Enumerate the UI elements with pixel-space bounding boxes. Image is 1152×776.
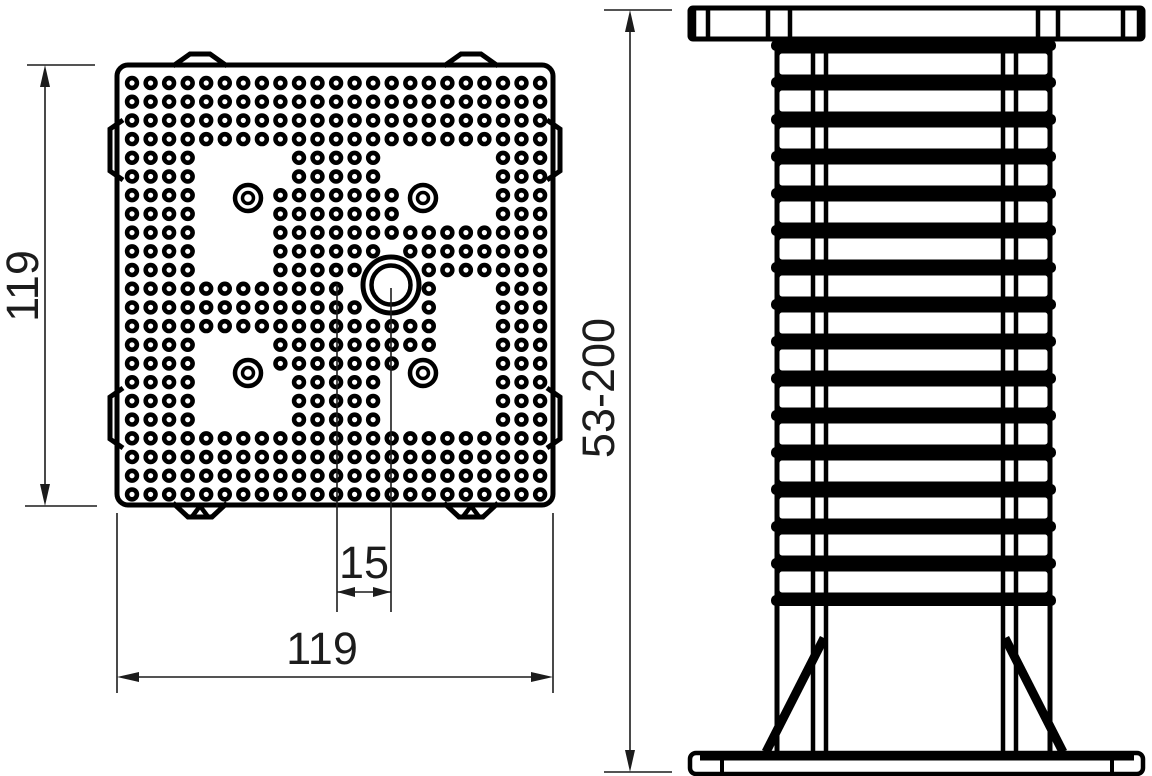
perforation-dot [368,209,378,219]
perforation-dot [183,415,193,425]
perforation-dot [424,78,434,88]
perforation-dot [535,433,545,443]
perforation-dot [164,433,174,443]
perforation-dot [276,134,286,144]
thread-groove [771,299,1056,310]
thread-band [777,273,1050,299]
perforation-dot [350,340,360,350]
perforation-dot [387,134,397,144]
perforation-dot [480,134,490,144]
perforation-dot [201,303,211,313]
perforation-dot [183,78,193,88]
perforation-dot [276,190,286,200]
perforation-dot [480,97,490,107]
dim-hole-offset: 15 [337,284,391,612]
perforation-dot [405,490,415,500]
perforation-dot [238,433,248,443]
perforation-dot [127,359,137,369]
perforation-dot [443,134,453,144]
perforation-dot [276,116,286,126]
perforation-dot [331,265,341,275]
perforation-dot [350,246,360,256]
perforation-dot [276,228,286,238]
perforation-dot [517,134,527,144]
perforation-dot [461,228,471,238]
perforation-dot [350,433,360,443]
perforation-dot [443,97,453,107]
perforation-dot [517,377,527,387]
perforation-dot [443,265,453,275]
perforation-dot [498,452,508,462]
perforation-dot [331,78,341,88]
perforation-dot [238,116,248,126]
dim-plate-width: 119 [117,513,553,693]
perforation-dot [498,134,508,144]
perforation-dot [276,433,286,443]
perforation-dot [331,172,341,182]
perforation-dot [257,97,267,107]
perforation-dot [276,265,286,275]
perforation-dot [183,471,193,481]
perforation-dot [535,396,545,406]
perforation-dot [498,228,508,238]
perforation-dot [535,452,545,462]
perforation-dot [164,490,174,500]
perforation-dot [424,321,434,331]
perforation-dot [498,190,508,200]
perforation-dot [535,265,545,275]
perforation-dot [183,265,193,275]
thread-band [777,347,1050,373]
perforation-dot [257,321,267,331]
perforation-dot [294,303,304,313]
top-plate [690,8,1143,39]
perforation-dot [164,153,174,163]
perforation-dot [183,228,193,238]
perforation-dot [294,377,304,387]
perforation-dot [201,116,211,126]
dim-label-height-range: 53-200 [573,318,624,458]
perforation-dot [517,190,527,200]
perforation-dot [164,190,174,200]
perforation-dot [127,172,137,182]
perforation-dot [257,284,267,294]
perforation-dot [183,209,193,219]
perforation-dot [405,433,415,443]
perforation-dot [313,228,323,238]
perforation-dot [368,490,378,500]
perforation-dot [127,134,137,144]
perforation-dot [294,359,304,369]
perforation-dot [461,78,471,88]
perforation-dot [498,97,508,107]
perforation-dot [127,265,137,275]
thread-groove [771,151,1056,162]
perforation-dot [480,246,490,256]
perforation-dot [517,321,527,331]
perforation-dot [480,490,490,500]
arrowhead-left [337,587,355,597]
perforation-dot [146,377,156,387]
perforation-dots [127,78,545,499]
screw-boss [410,185,436,211]
perforation-dot [164,415,174,425]
perforation-dot [405,228,415,238]
perforation-dot [127,284,137,294]
perforation-dot [443,78,453,88]
perforation-dot [350,116,360,126]
dim-height-range: 53-200 [573,10,672,772]
perforation-dot [313,359,323,369]
perforation-dot [461,452,471,462]
perforation-dot [238,321,248,331]
perforation-dot [164,284,174,294]
perforation-dot [405,78,415,88]
screw-boss-hole [243,368,254,379]
perforation-dot [294,471,304,481]
thread-band [777,310,1050,336]
perforation-dot [387,228,397,238]
perforation-dot [498,340,508,350]
perforation-dot [350,321,360,331]
perforation-dot [146,265,156,275]
perforation-dot [443,471,453,481]
perforation-dot [127,321,137,331]
perforation-dot [238,452,248,462]
perforation-dot [313,396,323,406]
perforation-dot [294,321,304,331]
perforation-dot [368,116,378,126]
perforation-dot [387,209,397,219]
perforation-dot [350,134,360,144]
perforation-dot [368,134,378,144]
perforation-dot [535,359,545,369]
perforation-dot [220,97,230,107]
perforation-dot [517,284,527,294]
perforation-dot [313,153,323,163]
perforation-dot [350,396,360,406]
perforation-dot [146,172,156,182]
perforation-dot [294,265,304,275]
perforation-dot [127,377,137,387]
perforation-dot [146,303,156,313]
perforation-dot [331,340,341,350]
perforation-dot [294,116,304,126]
perforation-dot [164,97,174,107]
perforation-dot [294,452,304,462]
perforation-dot [127,340,137,350]
perforation-dot [201,321,211,331]
perforation-dot [238,284,248,294]
perforation-dot [220,116,230,126]
perforation-dot [201,471,211,481]
perforation-dot [498,153,508,163]
perforation-dot [424,340,434,350]
perforation-dot [331,433,341,443]
thread-groove [771,188,1056,199]
perforation-dot [424,452,434,462]
perforation-dot [424,490,434,500]
perforation-dot [517,452,527,462]
perforation-dot [294,490,304,500]
perforation-dot [146,415,156,425]
perforation-dot [535,190,545,200]
perforation-dot [350,209,360,219]
perforation-dot [368,97,378,107]
perforation-dot [498,490,508,500]
technical-drawing-page: 119 15 119 [0,0,1152,776]
perforation-dot [517,396,527,406]
perforation-dot [294,190,304,200]
thread-band [777,199,1050,225]
perforation-dot [183,321,193,331]
perforation-dot [331,377,341,387]
perforation-dot [201,490,211,500]
perforation-dot [480,471,490,481]
perforation-dot [201,97,211,107]
perforation-dot [183,284,193,294]
thread-groove [771,225,1056,236]
perforation-dot [331,284,341,294]
perforation-dot [127,190,137,200]
perforation-dot [535,377,545,387]
perforation-dot [535,97,545,107]
perforation-dot [220,452,230,462]
perforation-dot [313,116,323,126]
thread-groove [771,262,1056,273]
support-gusset-right [1005,638,1063,752]
perforation-dot [164,321,174,331]
perforation-dot [257,471,267,481]
perforation-dot [480,265,490,275]
perforation-dot [276,340,286,350]
perforation-dot [294,228,304,238]
perforation-dot [183,452,193,462]
perforation-dot [535,153,545,163]
arrowhead-down [625,750,635,772]
top-plate-outline [690,8,1143,39]
thread-band [777,532,1050,558]
screw-boss-hole [418,368,429,379]
perforation-dot [146,116,156,126]
arrowhead-up [40,65,50,87]
perforation-dot [183,359,193,369]
perforation-dot [313,78,323,88]
perforation-dot [276,359,286,369]
thread-groove [771,484,1056,495]
perforation-dot [498,303,508,313]
perforation-dot [461,97,471,107]
perforation-dot [350,490,360,500]
perforation-dot [368,377,378,387]
perforation-dot [276,471,286,481]
perforation-dot [350,415,360,425]
perforation-dot [535,321,545,331]
perforation-dot [517,359,527,369]
perforation-dot [183,377,193,387]
perforation-dot [257,116,267,126]
perforation-dot [424,97,434,107]
perforation-dot [164,246,174,256]
perforation-dot [368,433,378,443]
perforation-dot [220,490,230,500]
perforation-dot [146,246,156,256]
perforation-dot [146,228,156,238]
perforation-dot [220,78,230,88]
arrowhead-down [40,484,50,506]
perforation-dot [276,321,286,331]
perforation-dot [517,116,527,126]
perforation-dot [461,433,471,443]
perforation-dot [535,284,545,294]
perforation-dot [294,78,304,88]
perforation-dot [405,340,415,350]
perforation-dot [146,153,156,163]
perforation-dot [517,415,527,425]
arrowhead-left [117,672,139,682]
perforation-dot [331,396,341,406]
thread-groove [771,336,1056,347]
perforation-dot [480,78,490,88]
perforation-dot [164,265,174,275]
perforation-dot [498,377,508,387]
perforation-dot [313,209,323,219]
perforation-dot [238,97,248,107]
perforation-dot [350,172,360,182]
perforation-dot [220,433,230,443]
perforation-dot [461,116,471,126]
perforation-dot [127,116,137,126]
perforation-dot [424,265,434,275]
perforation-dot [238,78,248,88]
perforation-dot [517,433,527,443]
perforation-dot [331,190,341,200]
perforation-dot [517,340,527,350]
dim-plate-height: 119 [0,65,97,506]
perforation-dot [257,78,267,88]
perforation-dot [183,246,193,256]
perforation-dot [405,452,415,462]
perforation-dot [535,228,545,238]
perforation-dot [331,153,341,163]
perforation-dot [183,490,193,500]
perforation-dot [443,116,453,126]
perforation-dot [535,209,545,219]
perforation-dot [498,172,508,182]
perforation-dot [405,134,415,144]
perforation-dot [331,246,341,256]
perforation-dot [238,303,248,313]
perforation-dot [164,340,174,350]
perforation-dot [164,396,174,406]
thread-groove [771,521,1056,532]
perforation-dot [164,134,174,144]
perforation-dot [517,209,527,219]
perforation-dot [535,78,545,88]
perforation-dot [146,490,156,500]
perforation-dot [424,471,434,481]
screw-boss [235,360,261,386]
perforation-dot [368,190,378,200]
perforation-dot [443,433,453,443]
perforation-dot [443,246,453,256]
dim-label-hole-offset: 15 [339,537,389,588]
perforation-dot [535,116,545,126]
perforation-dot [368,471,378,481]
perforation-dot [127,452,137,462]
perforation-dot [183,303,193,313]
perforation-dot [461,471,471,481]
perforation-dot [368,246,378,256]
perforation-dot [146,284,156,294]
perforation-dot [517,471,527,481]
thread-groove [771,410,1056,421]
threaded-column [777,51,1050,595]
perforation-dot [535,246,545,256]
perforation-dot [461,265,471,275]
perforation-dot [164,172,174,182]
perforation-dot [498,433,508,443]
top-view [110,54,560,518]
perforation-dot [313,134,323,144]
perforation-dot [350,377,360,387]
perforation-dot [461,134,471,144]
perforation-dot [498,415,508,425]
thread-groove [771,114,1056,125]
perforation-dot [220,471,230,481]
perforation-dot [164,471,174,481]
perforation-dot [127,490,137,500]
perforation-dot [535,471,545,481]
perforation-dot [350,452,360,462]
perforation-dot [331,471,341,481]
perforation-dot [313,172,323,182]
perforation-dot [294,134,304,144]
arrowhead-right [373,587,391,597]
perforation-dot [535,490,545,500]
perforation-dot [368,228,378,238]
perforation-dot [294,396,304,406]
perforation-dot [127,97,137,107]
perforation-dot [424,228,434,238]
thread-groove [771,447,1056,458]
perforation-dot [146,452,156,462]
perforation-dot [535,415,545,425]
perforation-dot [257,303,267,313]
perforation-dot [517,228,527,238]
perforation-dot [350,228,360,238]
screw-boss [410,360,436,386]
perforation-dot [480,116,490,126]
perforation-dot [313,452,323,462]
thread-band [777,421,1050,447]
top-plate-segment-lines [694,11,1139,37]
perforation-dot [350,97,360,107]
perforation-dot [461,246,471,256]
perforation-dot [517,78,527,88]
base-plate [690,753,1143,774]
thread-groove [771,77,1056,88]
perforation-dot [368,78,378,88]
perforation-dot [238,134,248,144]
perforation-dot [276,284,286,294]
perforation-dot [127,471,137,481]
perforation-dot [146,321,156,331]
thread-band [777,495,1050,521]
perforation-dot [331,490,341,500]
perforation-dot [368,321,378,331]
perforation-dot [331,415,341,425]
